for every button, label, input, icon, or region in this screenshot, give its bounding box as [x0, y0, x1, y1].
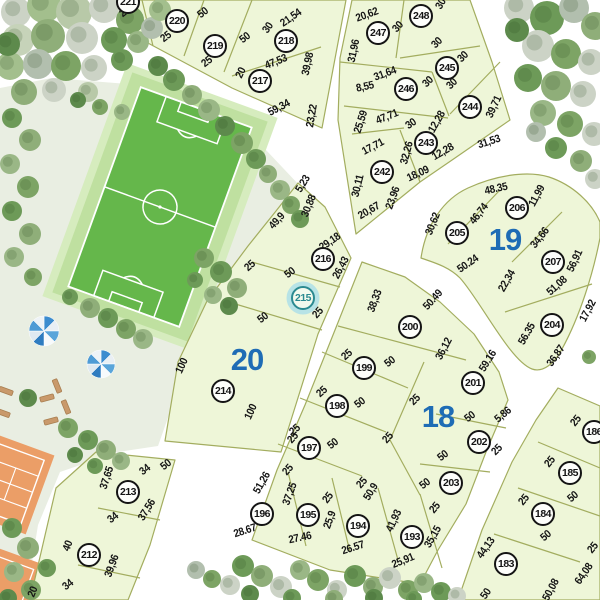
dimension-label: 11,99: [526, 183, 547, 208]
dimension-label: 20: [233, 66, 248, 80]
dimension-label: 36,87: [544, 343, 567, 369]
zone-label-19: 19: [489, 222, 521, 258]
lot-marker-195[interactable]: 195: [296, 503, 320, 527]
lot-marker-200[interactable]: 200: [398, 315, 422, 339]
lot-marker-243[interactable]: 243: [414, 131, 438, 155]
dimension-label: 21,54: [278, 6, 304, 29]
dimension-label: 31,53: [476, 133, 502, 152]
dimension-label: 46,74: [467, 201, 491, 226]
lot-marker-216[interactable]: 216: [311, 247, 335, 271]
dimension-label: 50: [255, 310, 270, 326]
dimension-label: 50.49: [421, 287, 445, 312]
dimension-label: 100: [173, 356, 190, 375]
dimension-label: 25: [339, 347, 355, 363]
dimension-label: 59.16: [477, 348, 499, 374]
dimension-label: 37,65: [98, 465, 117, 491]
dimension-label: 5,23: [293, 173, 313, 194]
dimension-label: 25: [242, 258, 258, 274]
lot-marker-247[interactable]: 247: [366, 21, 390, 45]
lot-marker-214[interactable]: 214: [211, 379, 235, 403]
dimension-label: 25: [407, 392, 423, 408]
dimension-label: 50: [565, 489, 581, 505]
dimension-label: 50: [325, 436, 340, 452]
dimension-label: 31,64: [372, 64, 398, 83]
dimension-label: 34: [105, 510, 120, 526]
dimension-label: 30: [260, 20, 276, 35]
dimension-label: 25: [489, 442, 505, 458]
dimension-label: 23,22: [304, 104, 320, 129]
dimension-label: 56,91: [565, 248, 586, 274]
lot-marker-218[interactable]: 218: [274, 29, 298, 53]
lot-marker-203[interactable]: 203: [439, 471, 463, 495]
dimension-label: 23,96: [383, 185, 402, 211]
dimension-label: 59,34: [266, 97, 292, 118]
dimension-label: 26.57: [340, 539, 366, 558]
dimension-label: 30: [429, 35, 445, 51]
lot-marker-212[interactable]: 212: [77, 543, 101, 567]
dimension-label: 25,59: [352, 109, 371, 135]
lot-marker-198[interactable]: 198: [325, 394, 349, 418]
dimension-label: 34: [137, 462, 152, 478]
lot-marker-215[interactable]: 215: [291, 286, 315, 310]
lot-marker-207[interactable]: 207: [541, 250, 565, 274]
dimension-label: 50: [462, 409, 477, 425]
dimension-label: 25: [320, 490, 336, 505]
dimension-label: 48.35: [484, 181, 509, 198]
dimension-label: 40: [61, 539, 76, 553]
dimension-label: 47,53: [263, 52, 289, 72]
lot-marker-244[interactable]: 244: [458, 95, 482, 119]
lot-marker-205[interactable]: 205: [445, 221, 469, 245]
dimension-label: 34: [60, 577, 75, 593]
dimension-label: 38,33: [365, 288, 384, 314]
dimension-label: 22,34: [496, 268, 518, 294]
dimension-label: 50: [478, 586, 494, 600]
lot-marker-246[interactable]: 246: [394, 77, 418, 101]
plot-map: 25502550253021,542047,5339,9859,3423,222…: [0, 0, 600, 600]
lot-marker-185[interactable]: 185: [558, 461, 582, 485]
lot-marker-213[interactable]: 213: [116, 480, 140, 504]
dimension-label: 25: [516, 492, 532, 508]
dimension-label: 37,56: [136, 497, 158, 523]
dimension-label: 35,15: [422, 524, 444, 550]
dimension-label: 27.46: [288, 530, 313, 547]
lot-marker-206[interactable]: 206: [505, 196, 529, 220]
lot-marker-197[interactable]: 197: [297, 436, 321, 460]
dimension-label: 50: [417, 476, 432, 492]
dimension-label: 39,96: [102, 553, 121, 579]
lot-marker-199[interactable]: 199: [352, 356, 376, 380]
dimension-label: 17,71: [360, 136, 386, 157]
dimension-label: 51,26: [251, 470, 273, 496]
dimension-label: 37,25: [280, 481, 299, 507]
dimension-label: 25: [310, 305, 326, 321]
dimension-label: 25: [427, 500, 443, 516]
lot-marker-194[interactable]: 194: [346, 514, 370, 538]
dimension-label: 50: [382, 354, 397, 370]
dimension-label: 20,67: [356, 200, 382, 222]
lot-marker-202[interactable]: 202: [467, 430, 491, 454]
dimension-label: 50: [538, 528, 554, 544]
dimension-label: 56.35: [516, 321, 538, 347]
dimension-label: 20: [26, 585, 41, 599]
dimension-label: 39,98: [300, 52, 317, 77]
dimension-label: 50: [195, 5, 210, 21]
dimension-label: 50: [435, 448, 450, 464]
dimension-label: 25,9: [321, 510, 338, 531]
dimension-label: 25: [280, 462, 296, 478]
dimension-label: 50: [237, 30, 252, 46]
lot-marker-217[interactable]: 217: [248, 69, 272, 93]
dimension-label: 25: [568, 413, 584, 429]
dimension-label: 44,13: [474, 535, 497, 561]
dimension-label: 5,86: [492, 405, 513, 426]
map-overlay: 25502550253021,542047,5339,9859,3423,222…: [0, 0, 600, 600]
lot-marker-248[interactable]: 248: [409, 4, 433, 28]
lot-marker-196[interactable]: 196: [250, 502, 274, 526]
dimension-label: 30: [433, 0, 449, 11]
dimension-label: 100: [242, 402, 259, 421]
dimension-label: 30,88: [299, 193, 319, 219]
lot-marker-219[interactable]: 219: [203, 34, 227, 58]
lot-marker-245[interactable]: 245: [435, 56, 459, 80]
dimension-label: 50: [352, 395, 367, 411]
dimension-label: 30: [390, 19, 406, 35]
dimension-label: 50: [282, 265, 297, 281]
dimension-label: 25: [585, 540, 600, 556]
lot-marker-201[interactable]: 201: [461, 371, 485, 395]
dimension-label: 49,9: [267, 210, 288, 231]
dimension-label: 17,92: [577, 298, 598, 324]
dimension-label: 51,08: [544, 274, 569, 298]
lot-marker-242[interactable]: 242: [370, 160, 394, 184]
dimension-label: 30,62: [423, 211, 443, 237]
lot-marker-184[interactable]: 184: [531, 502, 555, 526]
dimension-label: 25: [542, 454, 558, 470]
dimension-label: 25,91: [390, 551, 416, 571]
dimension-label: 25: [380, 430, 396, 446]
zone-label-20: 20: [231, 342, 263, 378]
dimension-label: 30: [420, 74, 436, 90]
lot-marker-183[interactable]: 183: [494, 552, 518, 576]
dimension-label: 30: [403, 116, 418, 132]
dimension-label: 18,09: [405, 164, 431, 185]
dimension-label: 64,08: [572, 561, 595, 587]
dimension-label: 31,96: [346, 39, 363, 64]
dimension-label: 34,66: [528, 225, 552, 250]
lot-marker-186[interactable]: 186: [582, 420, 600, 444]
dimension-label: 50,08: [540, 577, 561, 600]
dimension-label: 28.67: [232, 522, 258, 541]
lot-marker-193[interactable]: 193: [400, 525, 424, 549]
dimension-label: 39,71: [484, 94, 505, 120]
dimension-label: 50.24: [455, 252, 481, 275]
lot-marker-220[interactable]: 220: [165, 9, 189, 33]
dimension-label: 47,71: [374, 107, 400, 127]
lot-marker-204[interactable]: 204: [540, 313, 564, 337]
dimension-label: 50: [158, 457, 173, 473]
dimension-label: 30,11: [349, 174, 366, 199]
dimension-label: 36,12: [433, 336, 454, 362]
dimension-label: 8,55: [355, 79, 375, 94]
zone-label-18: 18: [422, 399, 454, 435]
